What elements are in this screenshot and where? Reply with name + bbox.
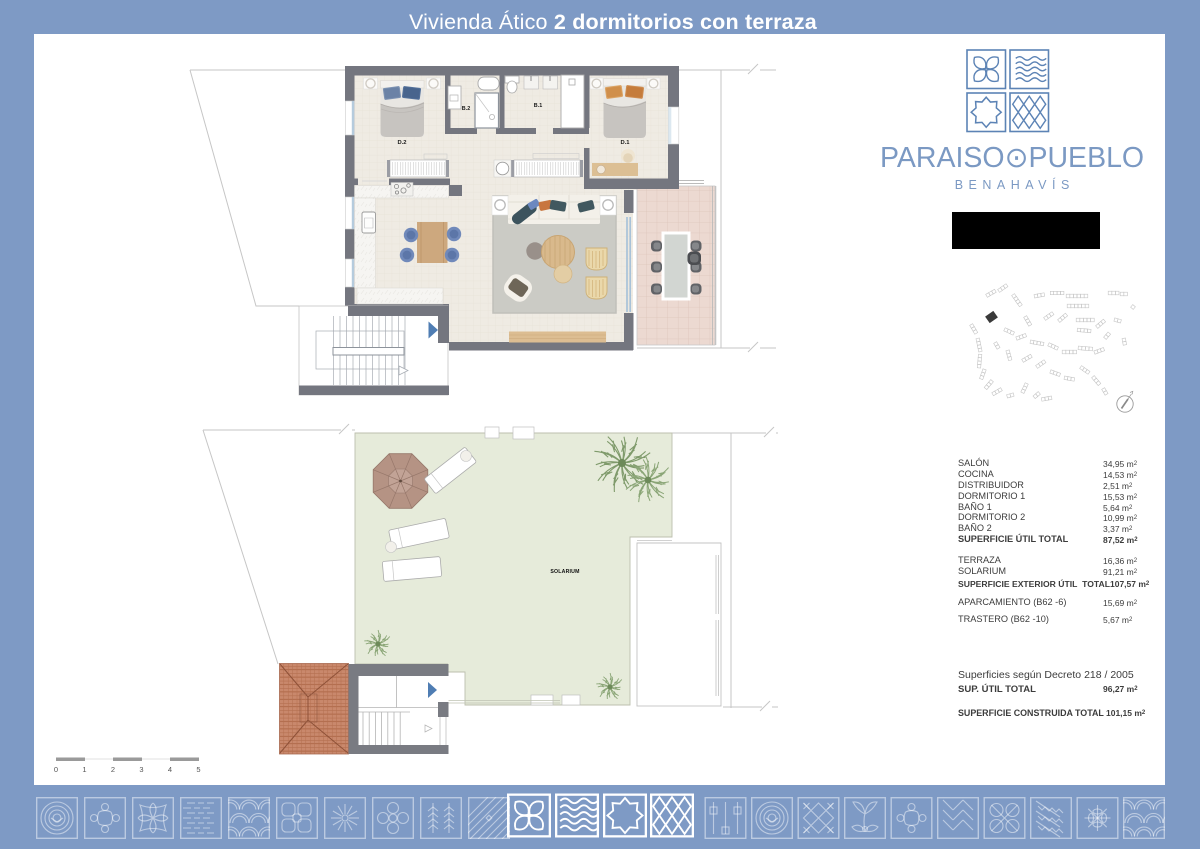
svg-text:B.2: B.2 (462, 106, 470, 112)
svg-text:1: 1 (82, 765, 86, 774)
svg-text:SOLARIUM: SOLARIUM (550, 569, 579, 575)
svg-text:2: 2 (111, 765, 115, 774)
svg-text:D.2: D.2 (397, 140, 406, 146)
svg-text:D.1: D.1 (620, 140, 630, 146)
svg-text:3: 3 (139, 765, 143, 774)
svg-text:B.1: B.1 (534, 103, 542, 109)
svg-text:4: 4 (168, 765, 172, 774)
svg-text:5: 5 (196, 765, 200, 774)
svg-text:0: 0 (54, 765, 58, 774)
